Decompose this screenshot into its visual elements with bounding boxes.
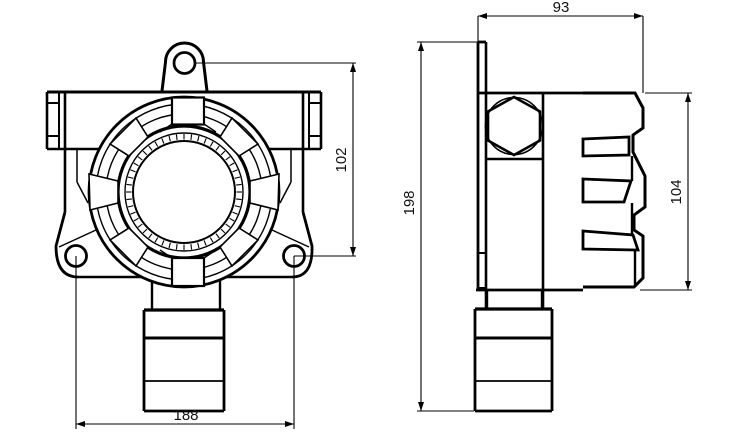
dim-label-188: 188 (173, 407, 198, 424)
dial-tick (236, 199, 241, 200)
dim198-arrow-bottom (418, 402, 424, 411)
dim102-arrow-bottom (350, 247, 356, 256)
side-view: 93 198 104 (401, 0, 692, 411)
dial-tick (127, 199, 132, 200)
dial-tick (191, 244, 192, 249)
bezel-lug-right (250, 174, 279, 210)
bezel-tab-bottom (172, 258, 204, 286)
dim198-arrow-top (418, 42, 424, 51)
hex-nut-circle (486, 98, 543, 155)
front-view: 102 188 (47, 43, 356, 429)
mounting-lug-hole (174, 53, 195, 74)
front-sensor-housing (144, 280, 224, 411)
dim102-arrow-top (350, 63, 356, 72)
technical-drawing-canvas: 102 188 (0, 0, 748, 448)
dim-label-93: 93 (553, 0, 570, 16)
display-bezel (59, 97, 309, 287)
mounting-lug (162, 43, 207, 91)
dial-tick (191, 135, 192, 140)
cover-slot-2 (583, 179, 631, 202)
dim188-arrow-right (285, 421, 294, 427)
dim104-arrow-top (685, 93, 691, 102)
dial-tick (127, 184, 132, 185)
dim-label-102: 102 (333, 147, 350, 172)
dim-label-198: 198 (401, 190, 418, 215)
dial-tick (236, 184, 241, 185)
side-dimensions: 93 198 104 (401, 0, 692, 411)
left-rib-diagonal (77, 182, 88, 203)
enclosure-barrel (476, 93, 583, 308)
right-rib-diagonal (280, 182, 291, 203)
side-sensor-housing (475, 290, 552, 411)
dimension-drawing-svg: 102 188 (0, 0, 748, 448)
finned-cover (583, 93, 645, 287)
bezel-lug-left (89, 174, 118, 210)
dim93-arrow-right (634, 13, 643, 19)
dim-label-104: 104 (668, 179, 685, 204)
dial-tick (176, 135, 177, 140)
dim104-arrow-bottom (685, 281, 691, 290)
mounting-lug-outline (162, 43, 207, 91)
dial-tick (176, 244, 177, 249)
dim188-arrow-left (76, 421, 85, 427)
dim93-arrow-left (478, 13, 487, 19)
bezel-tab-top (172, 98, 204, 125)
hex-gland-nut (488, 97, 540, 155)
bezel-ear-diagonal-right (272, 230, 309, 247)
back-plate (478, 42, 486, 308)
cover-slot-3 (583, 231, 638, 250)
cover-slot-1 (583, 137, 629, 156)
